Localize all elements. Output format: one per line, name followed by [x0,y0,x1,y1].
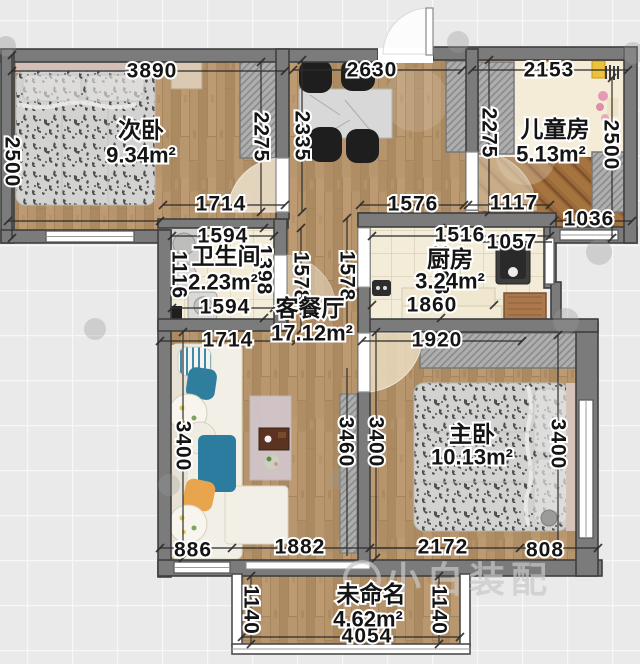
svg-text:2153: 2153 [524,59,575,82]
svg-text:2630: 2630 [347,59,398,82]
svg-text:3.24m²: 3.24m² [415,269,485,294]
svg-text:1036: 1036 [564,208,615,231]
svg-text:1117: 1117 [490,192,538,215]
svg-text:未命名: 未命名 [337,581,406,607]
svg-text:1860: 1860 [407,294,458,317]
svg-text:2172: 2172 [418,536,469,559]
svg-text:808: 808 [526,539,564,562]
svg-text:3460: 3460 [335,417,358,468]
svg-text:1057: 1057 [487,231,538,254]
svg-text:1594: 1594 [200,296,251,319]
svg-text:1578: 1578 [336,251,359,302]
svg-text:主卧: 主卧 [449,421,495,447]
svg-text:次卧: 次卧 [118,117,164,143]
svg-text:886: 886 [174,539,212,562]
svg-text:17.12m²: 17.12m² [271,321,353,346]
svg-text:2275: 2275 [250,112,273,163]
svg-text:1882: 1882 [275,536,326,559]
svg-text:小白装配: 小白装配 [385,559,553,600]
svg-text:2335: 2335 [291,111,314,162]
svg-text:9.34m²: 9.34m² [106,143,176,168]
svg-text:1576: 1576 [388,193,439,216]
svg-text:卫生间: 卫生间 [192,243,261,269]
svg-text:2500: 2500 [600,120,623,171]
svg-text:2500: 2500 [1,137,24,188]
svg-text:客餐厅: 客餐厅 [276,295,345,321]
svg-text:3400: 3400 [547,419,570,470]
svg-text:10.13m²: 10.13m² [431,445,513,470]
svg-text:1140: 1140 [240,585,263,635]
svg-text:4.62m²: 4.62m² [333,607,403,632]
svg-text:1714: 1714 [203,329,254,352]
svg-text:5.13m²: 5.13m² [516,142,586,167]
svg-text:2.23m²: 2.23m² [188,270,258,295]
svg-text:1516: 1516 [435,224,486,247]
svg-text:儿童房: 儿童房 [521,116,590,142]
svg-text:1920: 1920 [412,329,463,352]
svg-text:2275: 2275 [478,108,501,159]
svg-text:3890: 3890 [127,60,178,83]
svg-text:1116: 1116 [168,251,191,299]
svg-text:3400: 3400 [365,417,388,468]
svg-text:1140: 1140 [428,585,451,635]
svg-text:3400: 3400 [172,421,195,472]
svg-text:1714: 1714 [196,193,247,216]
